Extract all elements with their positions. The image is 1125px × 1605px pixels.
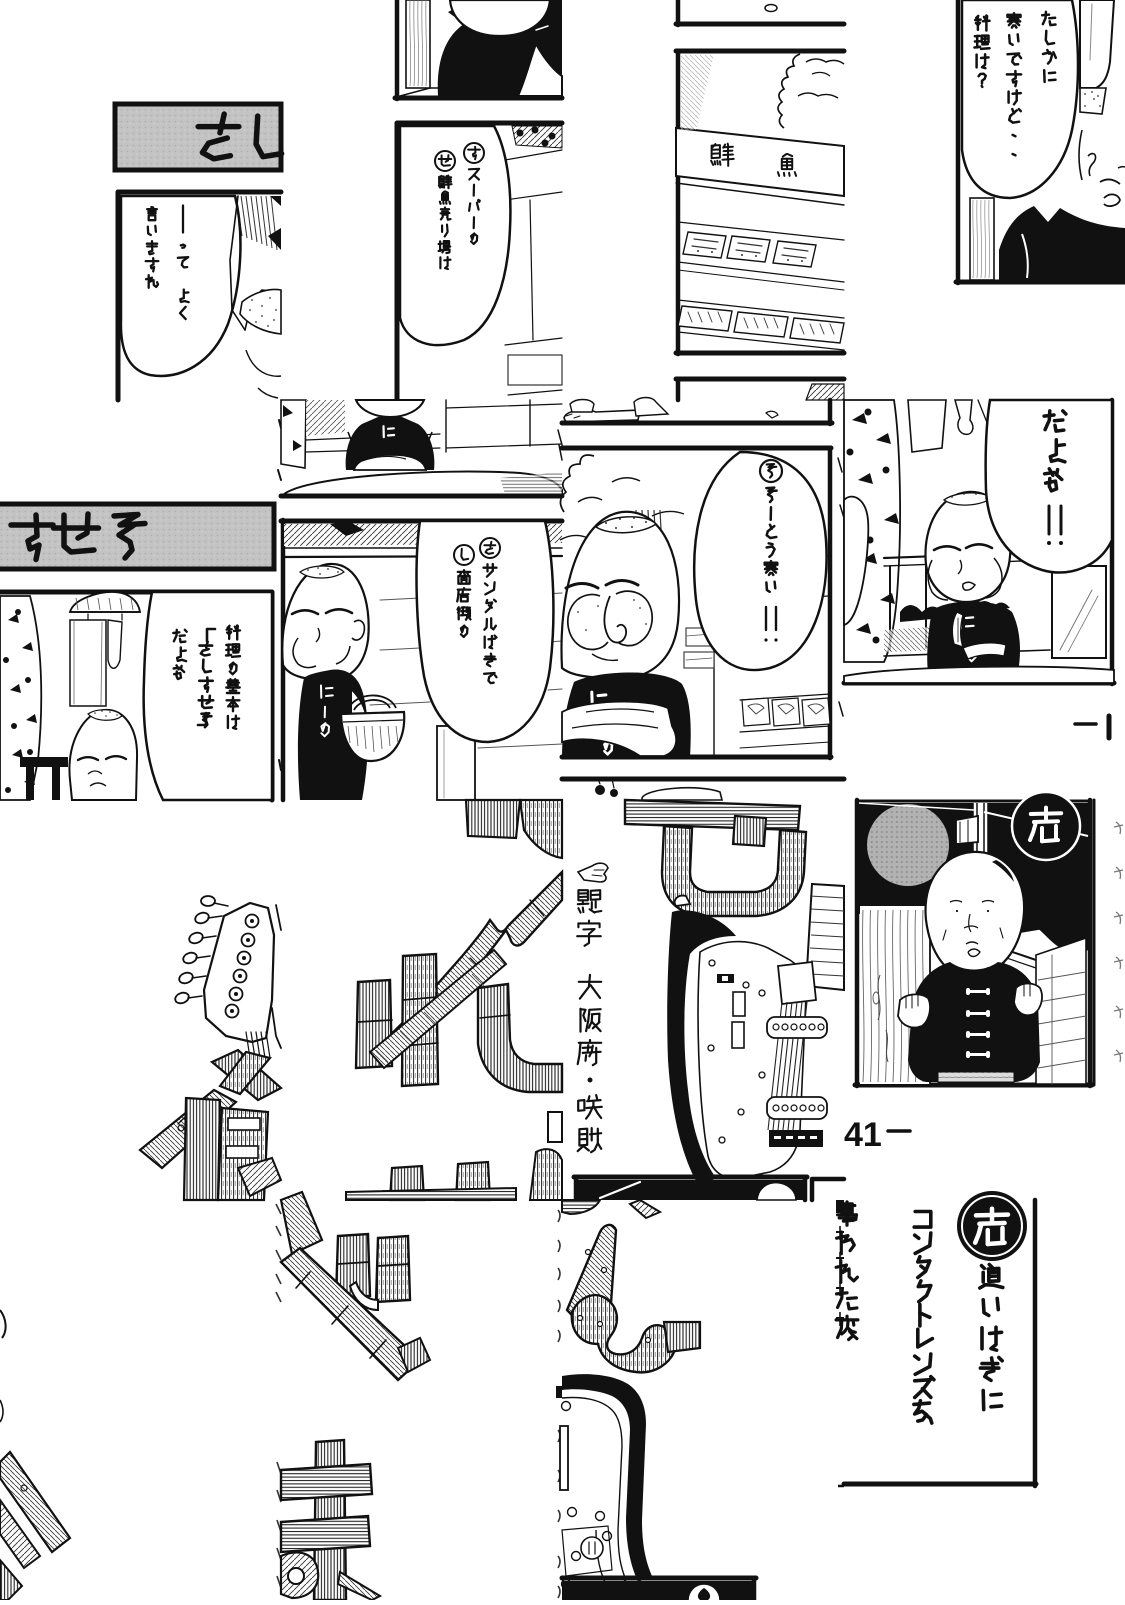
svg-text:41: 41 <box>844 1116 882 1154</box>
